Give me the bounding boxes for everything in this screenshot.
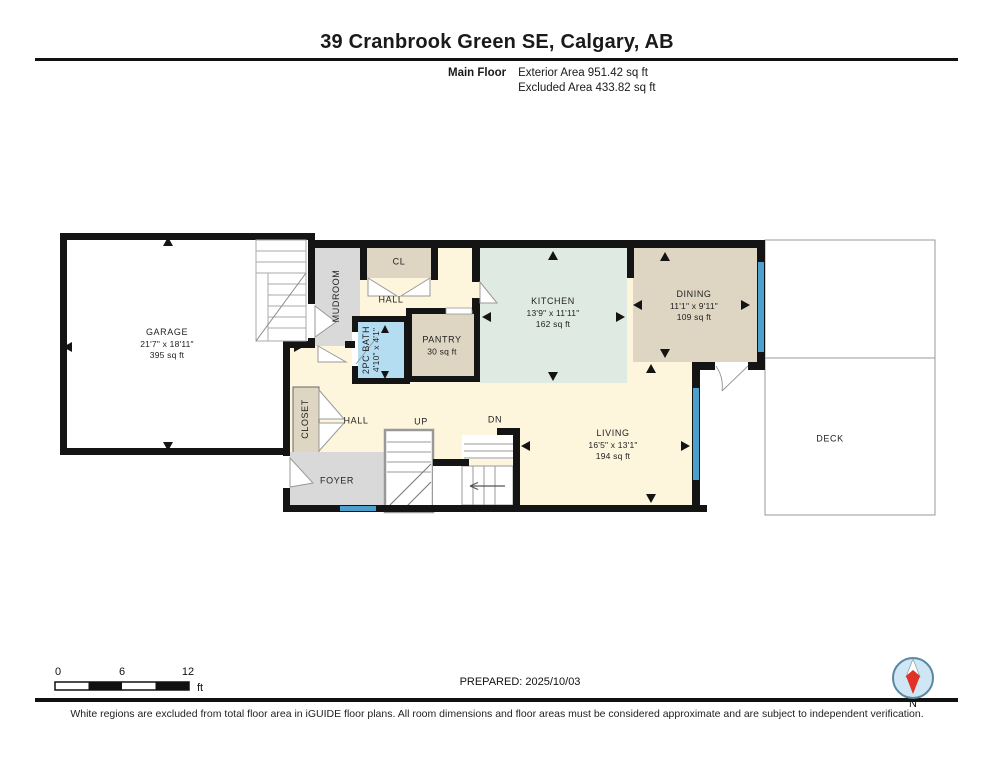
room-label-hall-upper: HALL	[379, 294, 404, 306]
floorplan-svg	[0, 0, 994, 768]
compass-label: N	[909, 698, 917, 710]
window-living	[693, 388, 699, 480]
floorplan-page: 39 Cranbrook Green SE, Calgary, AB Main …	[0, 0, 994, 768]
compass-icon	[893, 658, 933, 698]
room-label-foyer: FOYER	[320, 475, 354, 487]
garage-stairs	[256, 240, 306, 341]
window-dining	[758, 262, 764, 352]
room-label-garage: GARAGE 21'7" x 18'11" 395 sq ft	[140, 327, 194, 362]
room-label-dn: DN	[488, 414, 502, 426]
room-label-up: UP	[414, 416, 428, 428]
room-label-closet: CLOSET	[300, 399, 310, 439]
window-foyer	[340, 506, 376, 511]
room-label-bath: 2PC BATH 4'10" x 4'1"	[361, 326, 381, 374]
room-label-hall-lower: HALL	[344, 415, 369, 427]
scale-tick-6: 6	[119, 666, 125, 678]
room-label-pantry: PANTRY 30 sq ft	[422, 335, 461, 358]
pantry-opening	[446, 308, 472, 314]
deck-region	[765, 240, 935, 515]
scale-tick-12: 12	[182, 666, 194, 678]
room-label-mudroom: MUDROOM	[331, 270, 341, 323]
stairs-up	[385, 430, 433, 512]
scale-unit: ft	[197, 682, 203, 694]
room-label-kitchen: KITCHEN 13'9" x 11'11" 162 sq ft	[527, 296, 580, 331]
scale-tick-0: 0	[55, 666, 61, 678]
room-label-dining: DINING 11'1" x 9'11" 109 sq ft	[670, 289, 718, 324]
room-label-cl: CL	[393, 256, 406, 268]
room-label-living: LIVING 16'5" x 13'1" 194 sq ft	[588, 428, 637, 463]
scale-bar	[55, 682, 189, 690]
room-label-deck: DECK	[816, 433, 843, 445]
prepared-date: PREPARED: 2025/10/03	[460, 676, 581, 688]
